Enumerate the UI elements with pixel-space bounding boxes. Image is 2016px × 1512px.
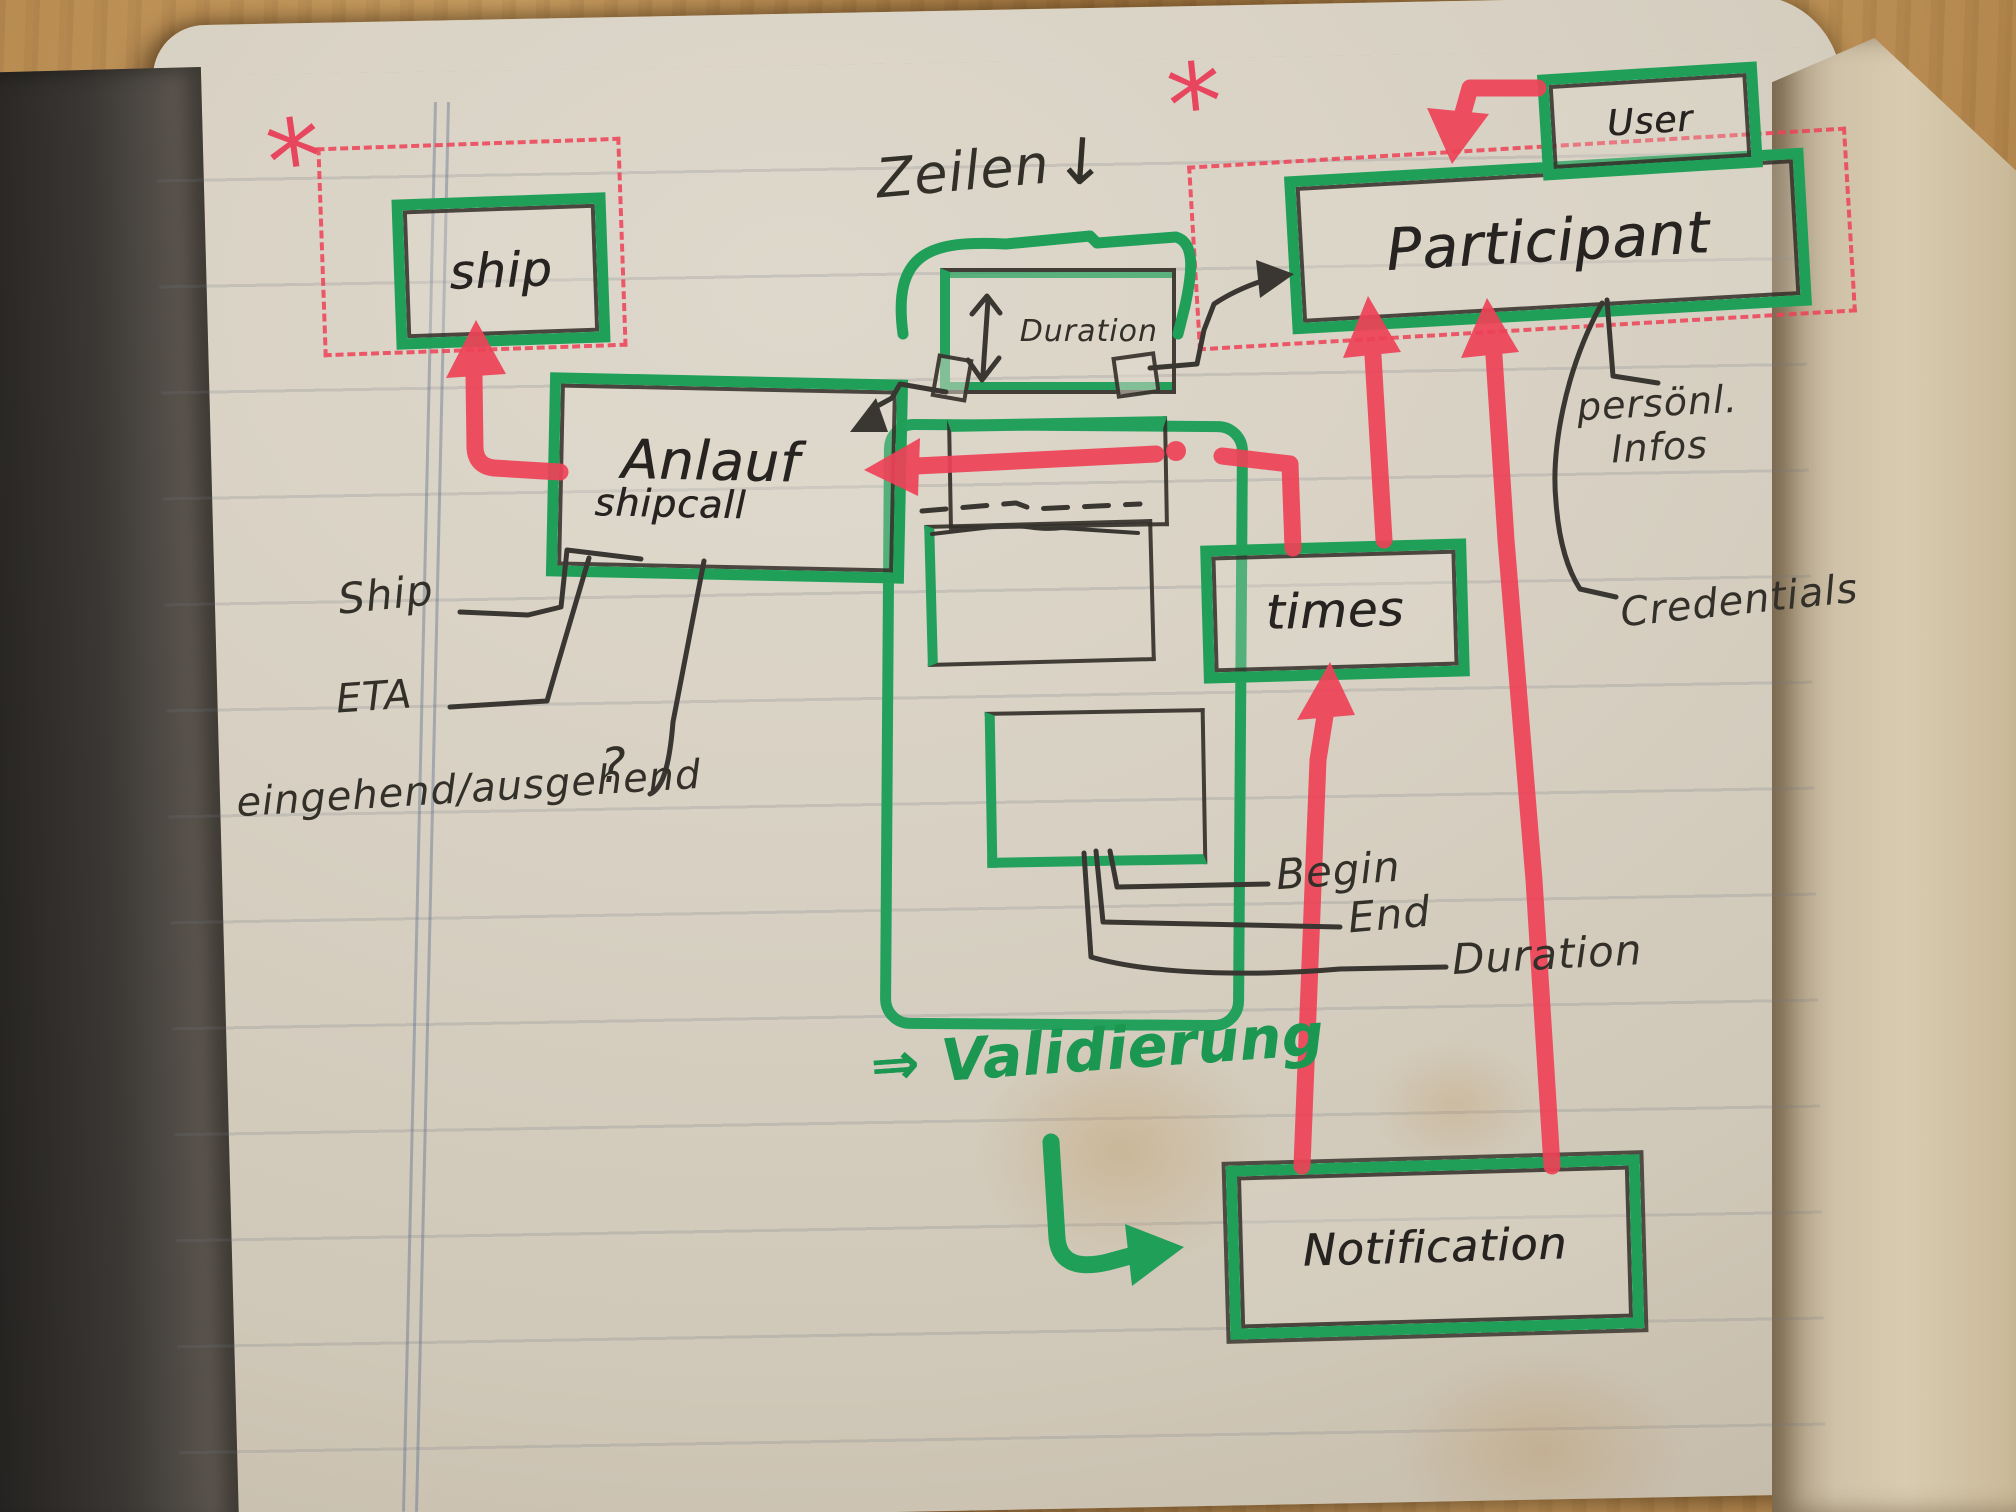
entity-duration-label: Duration <box>1020 314 1158 349</box>
entity-times-label: times <box>1265 581 1405 641</box>
notebook-photo: * * ship Anlauf shipcall Duration Partic… <box>0 0 2016 1512</box>
entity-notification: Notification <box>1226 1154 1645 1339</box>
question-mark-label: ? <box>600 738 626 794</box>
entity-user: User <box>1537 61 1763 180</box>
entity-anlauf-sublabel: shipcall <box>594 480 747 527</box>
end-attr-label: End <box>1346 886 1433 942</box>
time-entry-box-3 <box>985 708 1208 868</box>
duration-connector-square-left <box>930 353 973 403</box>
entity-user-label: User <box>1606 98 1694 144</box>
entity-ship: ship <box>391 192 610 349</box>
time-entry-box-1 <box>947 416 1169 530</box>
entity-notification-label: Notification <box>1302 1218 1568 1276</box>
entity-participant-label: Participant <box>1384 198 1711 284</box>
entity-ship-label: ship <box>448 241 553 301</box>
time-entry-box-2 <box>924 519 1156 667</box>
duration-connector-square-right <box>1111 351 1160 399</box>
ship-attr-label: Ship <box>336 565 436 624</box>
entity-times: times <box>1200 538 1470 683</box>
down-arrow-icon: ↓ <box>1051 124 1111 202</box>
eta-attr-label: ETA <box>334 671 413 722</box>
entity-anlauf: Anlauf shipcall <box>546 372 908 583</box>
personal-infos-label: persönl. Infos <box>1576 378 1741 474</box>
book-cover-edge <box>0 67 239 1512</box>
duration-attr-label: Duration <box>1451 925 1644 984</box>
